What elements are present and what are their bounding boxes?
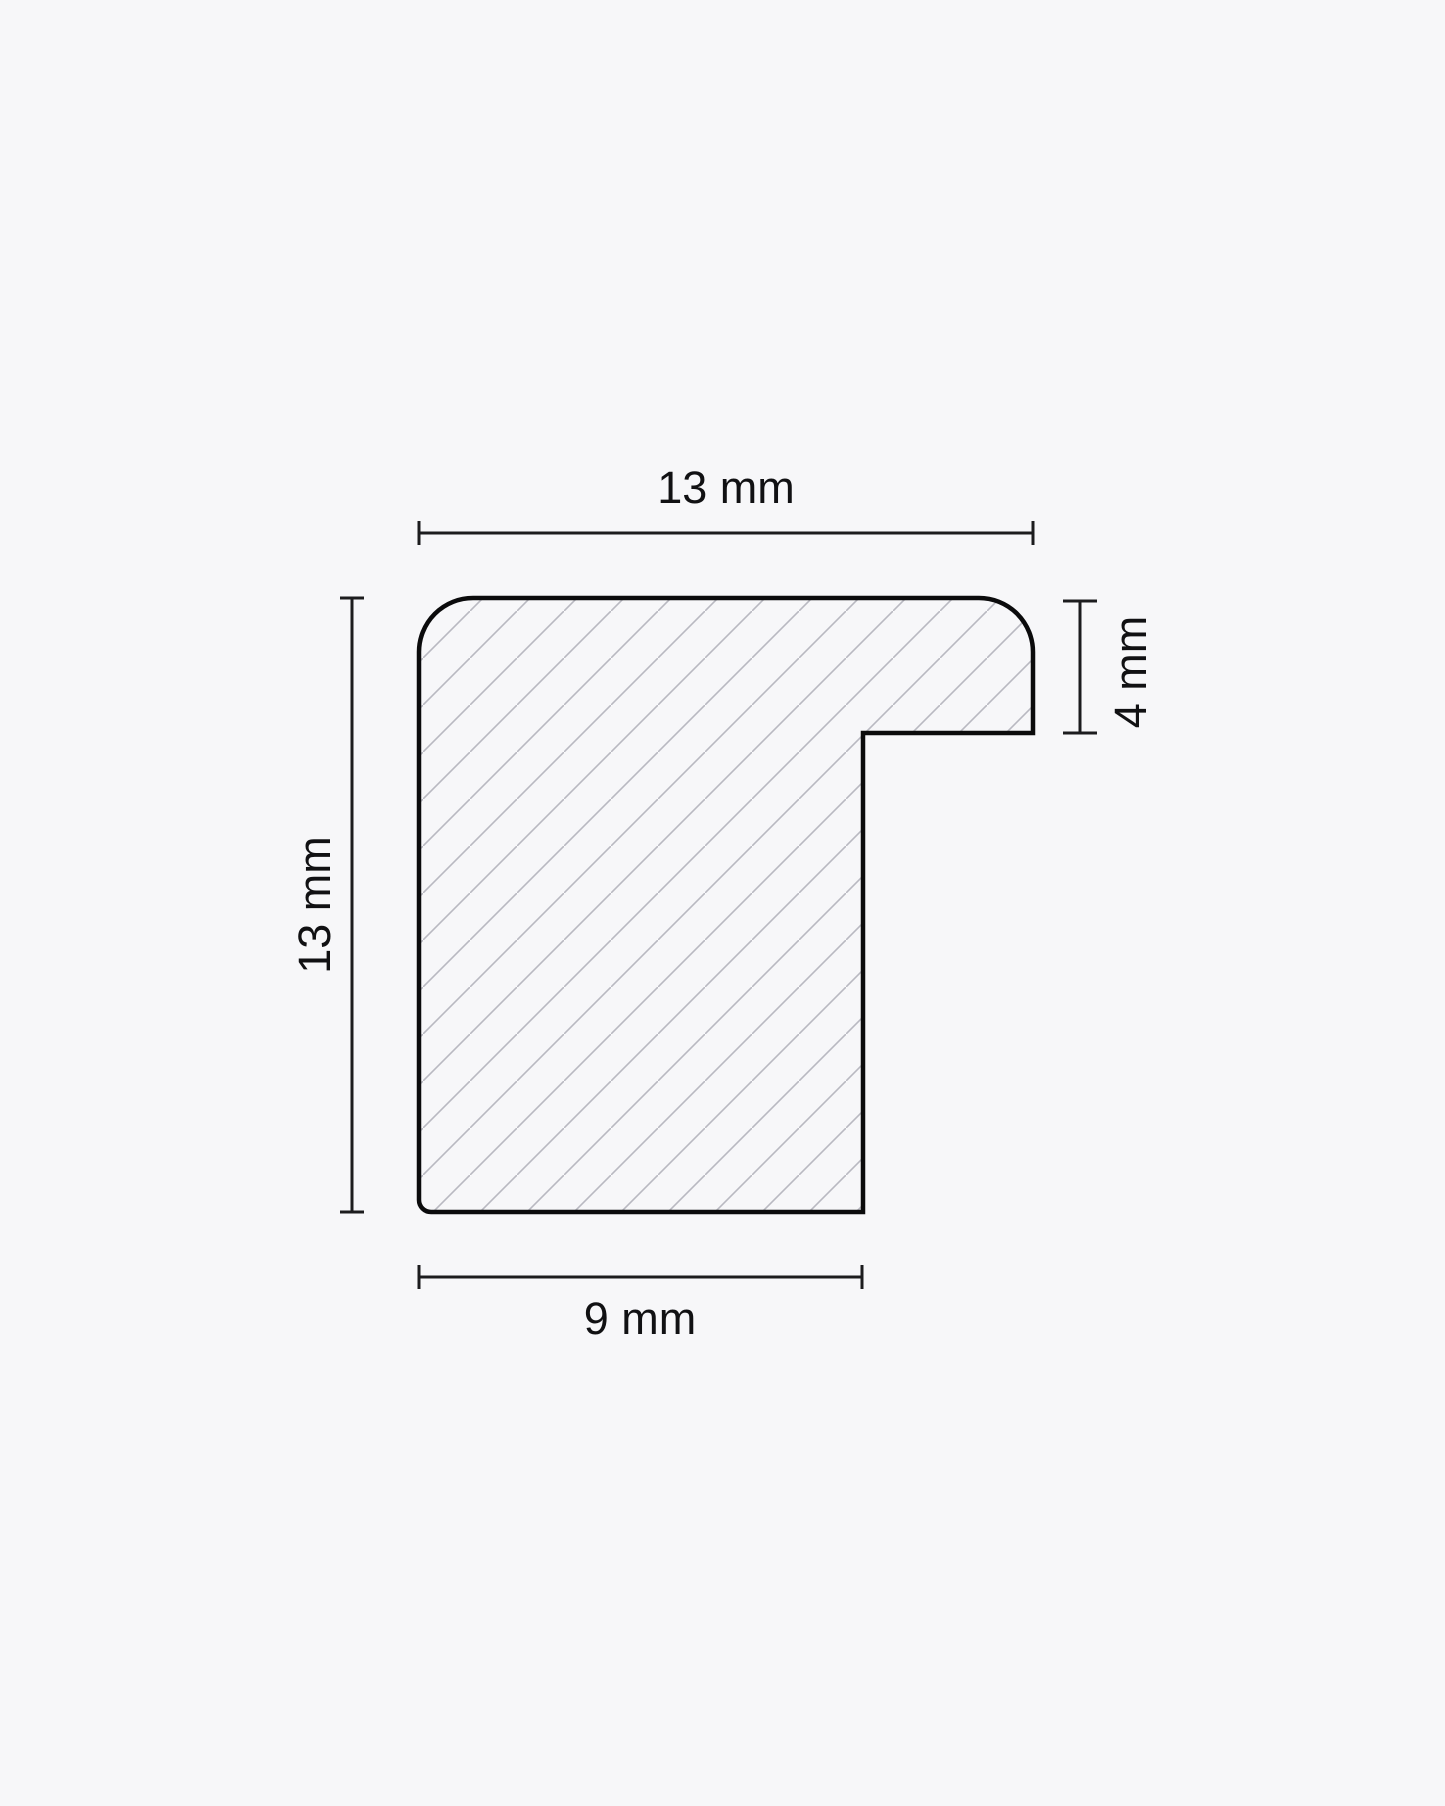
frame-profile-diagram: 13 mm 13 mm 4 mm 9 mm [0,0,1445,1806]
dimension-top-label: 13 mm [657,462,795,513]
dimension-left-label: 13 mm [289,836,340,974]
diagram-canvas: 13 mm 13 mm 4 mm 9 mm [0,0,1445,1806]
dimension-right-label: 4 mm [1105,616,1156,729]
dimension-bottom-label: 9 mm [584,1293,697,1344]
